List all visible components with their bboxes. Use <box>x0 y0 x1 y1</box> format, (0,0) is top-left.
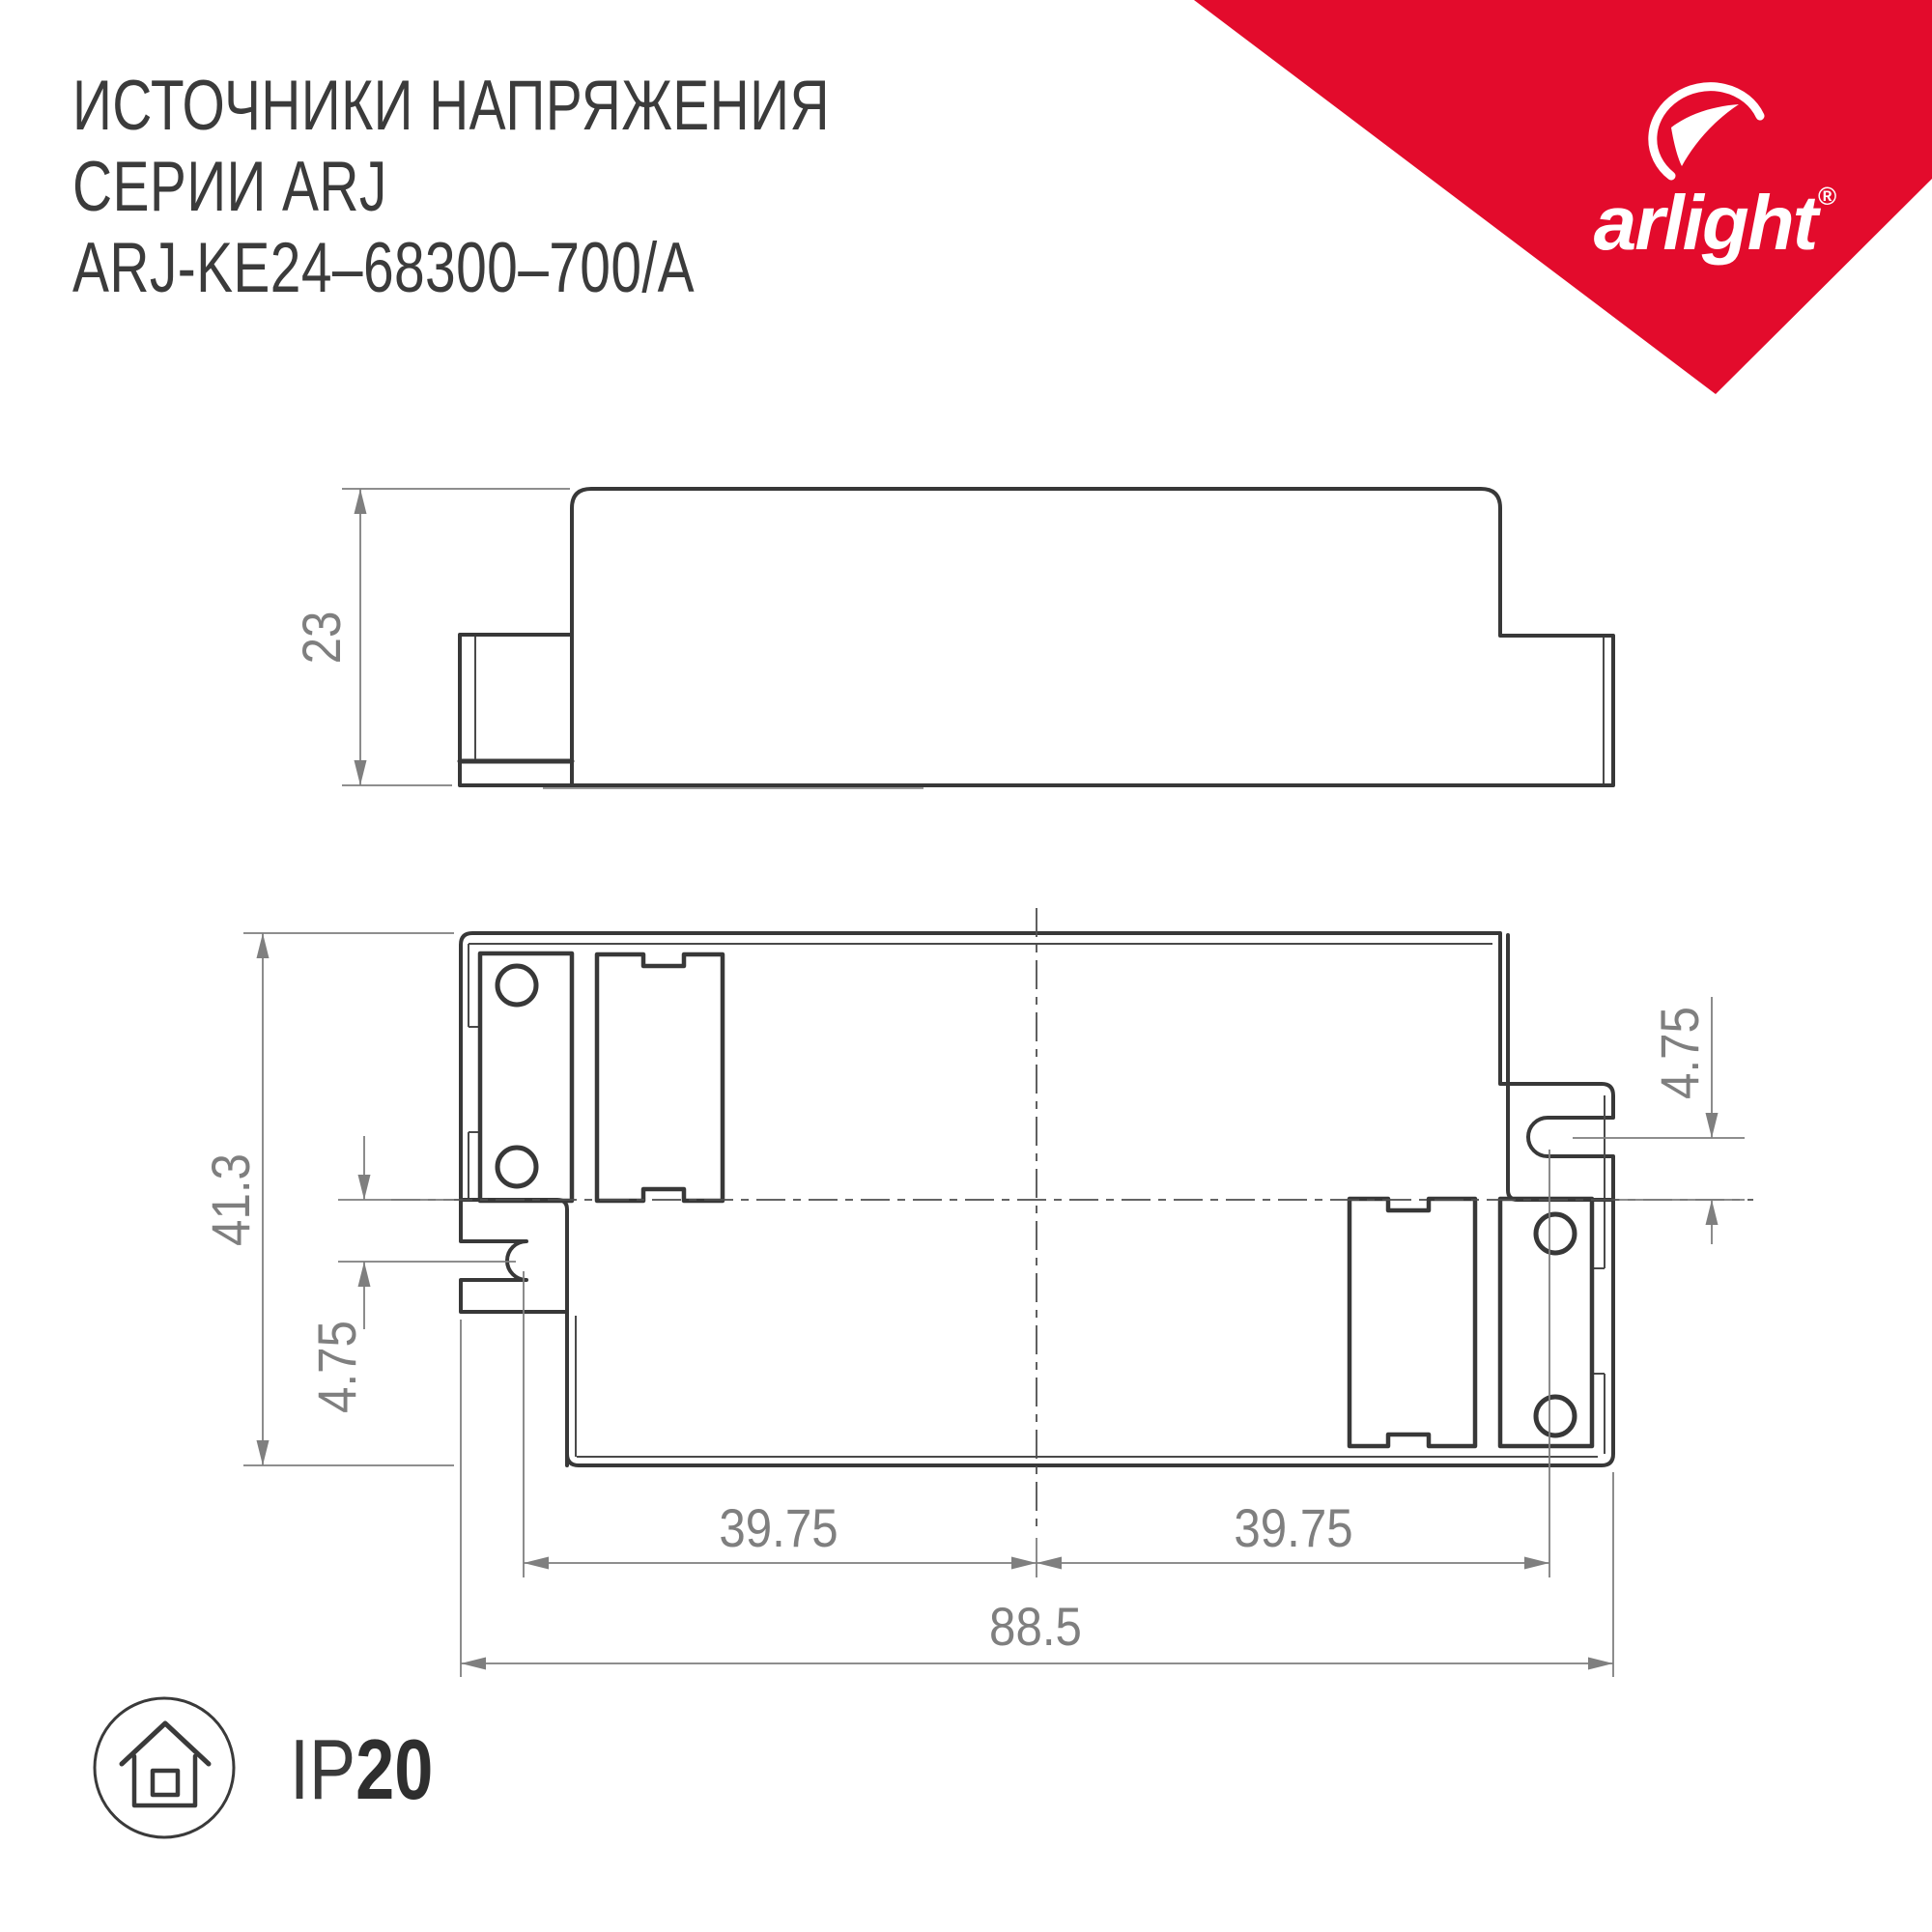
screw-hole <box>497 966 536 1005</box>
dim-side-height: 23 <box>292 489 570 785</box>
screw-hole <box>497 1148 536 1186</box>
screw-hole <box>1536 1397 1575 1435</box>
dim-slot-offset-left: 4.75 <box>307 1136 516 1413</box>
mount-bracket-right <box>1500 1199 1592 1446</box>
page-title-line1: ИСТОЧНИКИ НАПРЯЖЕНИЯ <box>72 66 830 144</box>
page-title-line3: ARJ-KE24–68300–700/A <box>72 228 695 306</box>
terminal-block-left <box>597 954 723 1201</box>
ip-rating-prefix: IP <box>290 1722 355 1817</box>
mount-bracket-left <box>480 953 572 1201</box>
terminal-block-right <box>1350 1199 1475 1446</box>
datasheet-canvas: ИСТОЧНИКИ НАПРЯЖЕНИЯ СЕРИИ ARJ ARJ-KE24–… <box>0 0 1932 1932</box>
dim-label-total-width: 88.5 <box>989 1597 1082 1658</box>
ip-rating-value: 20 <box>355 1722 433 1817</box>
brand-logo: arlight ® <box>1194 0 1932 394</box>
dim-label-hole-span-left: 39.75 <box>719 1498 838 1559</box>
page-title-line2: СЕРИИ ARJ <box>72 147 387 225</box>
side-view-inner-edges <box>475 637 1604 783</box>
dim-label-slot-offset-right: 4.75 <box>1650 1007 1711 1099</box>
side-view: 23 <box>292 489 1613 788</box>
dim-label-top-height: 41.3 <box>201 1153 262 1246</box>
brand-name: arlight <box>1594 180 1822 266</box>
dim-hole-span-right: 39.75 <box>1037 1150 1549 1577</box>
dim-slot-offset-right: 4.75 <box>1573 997 1745 1244</box>
indoor-house-icon <box>95 1698 234 1837</box>
registered-mark: ® <box>1818 182 1836 211</box>
dim-label-side-height: 23 <box>292 611 353 665</box>
side-view-outline <box>460 489 1613 785</box>
dim-label-hole-span-right: 39.75 <box>1234 1498 1352 1559</box>
ip-badge: IP20 <box>95 1698 433 1837</box>
dim-hole-span-left: 39.75 <box>524 1271 1037 1577</box>
top-view: 41.3 4.75 4.75 39.75 39.75 <box>201 908 1753 1677</box>
screw-hole <box>1536 1214 1575 1253</box>
ip-rating: IP20 <box>290 1722 433 1817</box>
dim-label-slot-offset-left: 4.75 <box>307 1321 368 1413</box>
datasheet-page: ИСТОЧНИКИ НАПРЯЖЕНИЯ СЕРИИ ARJ ARJ-KE24–… <box>0 0 1932 1932</box>
title-block: ИСТОЧНИКИ НАПРЯЖЕНИЯ СЕРИИ ARJ ARJ-KE24–… <box>72 66 830 306</box>
